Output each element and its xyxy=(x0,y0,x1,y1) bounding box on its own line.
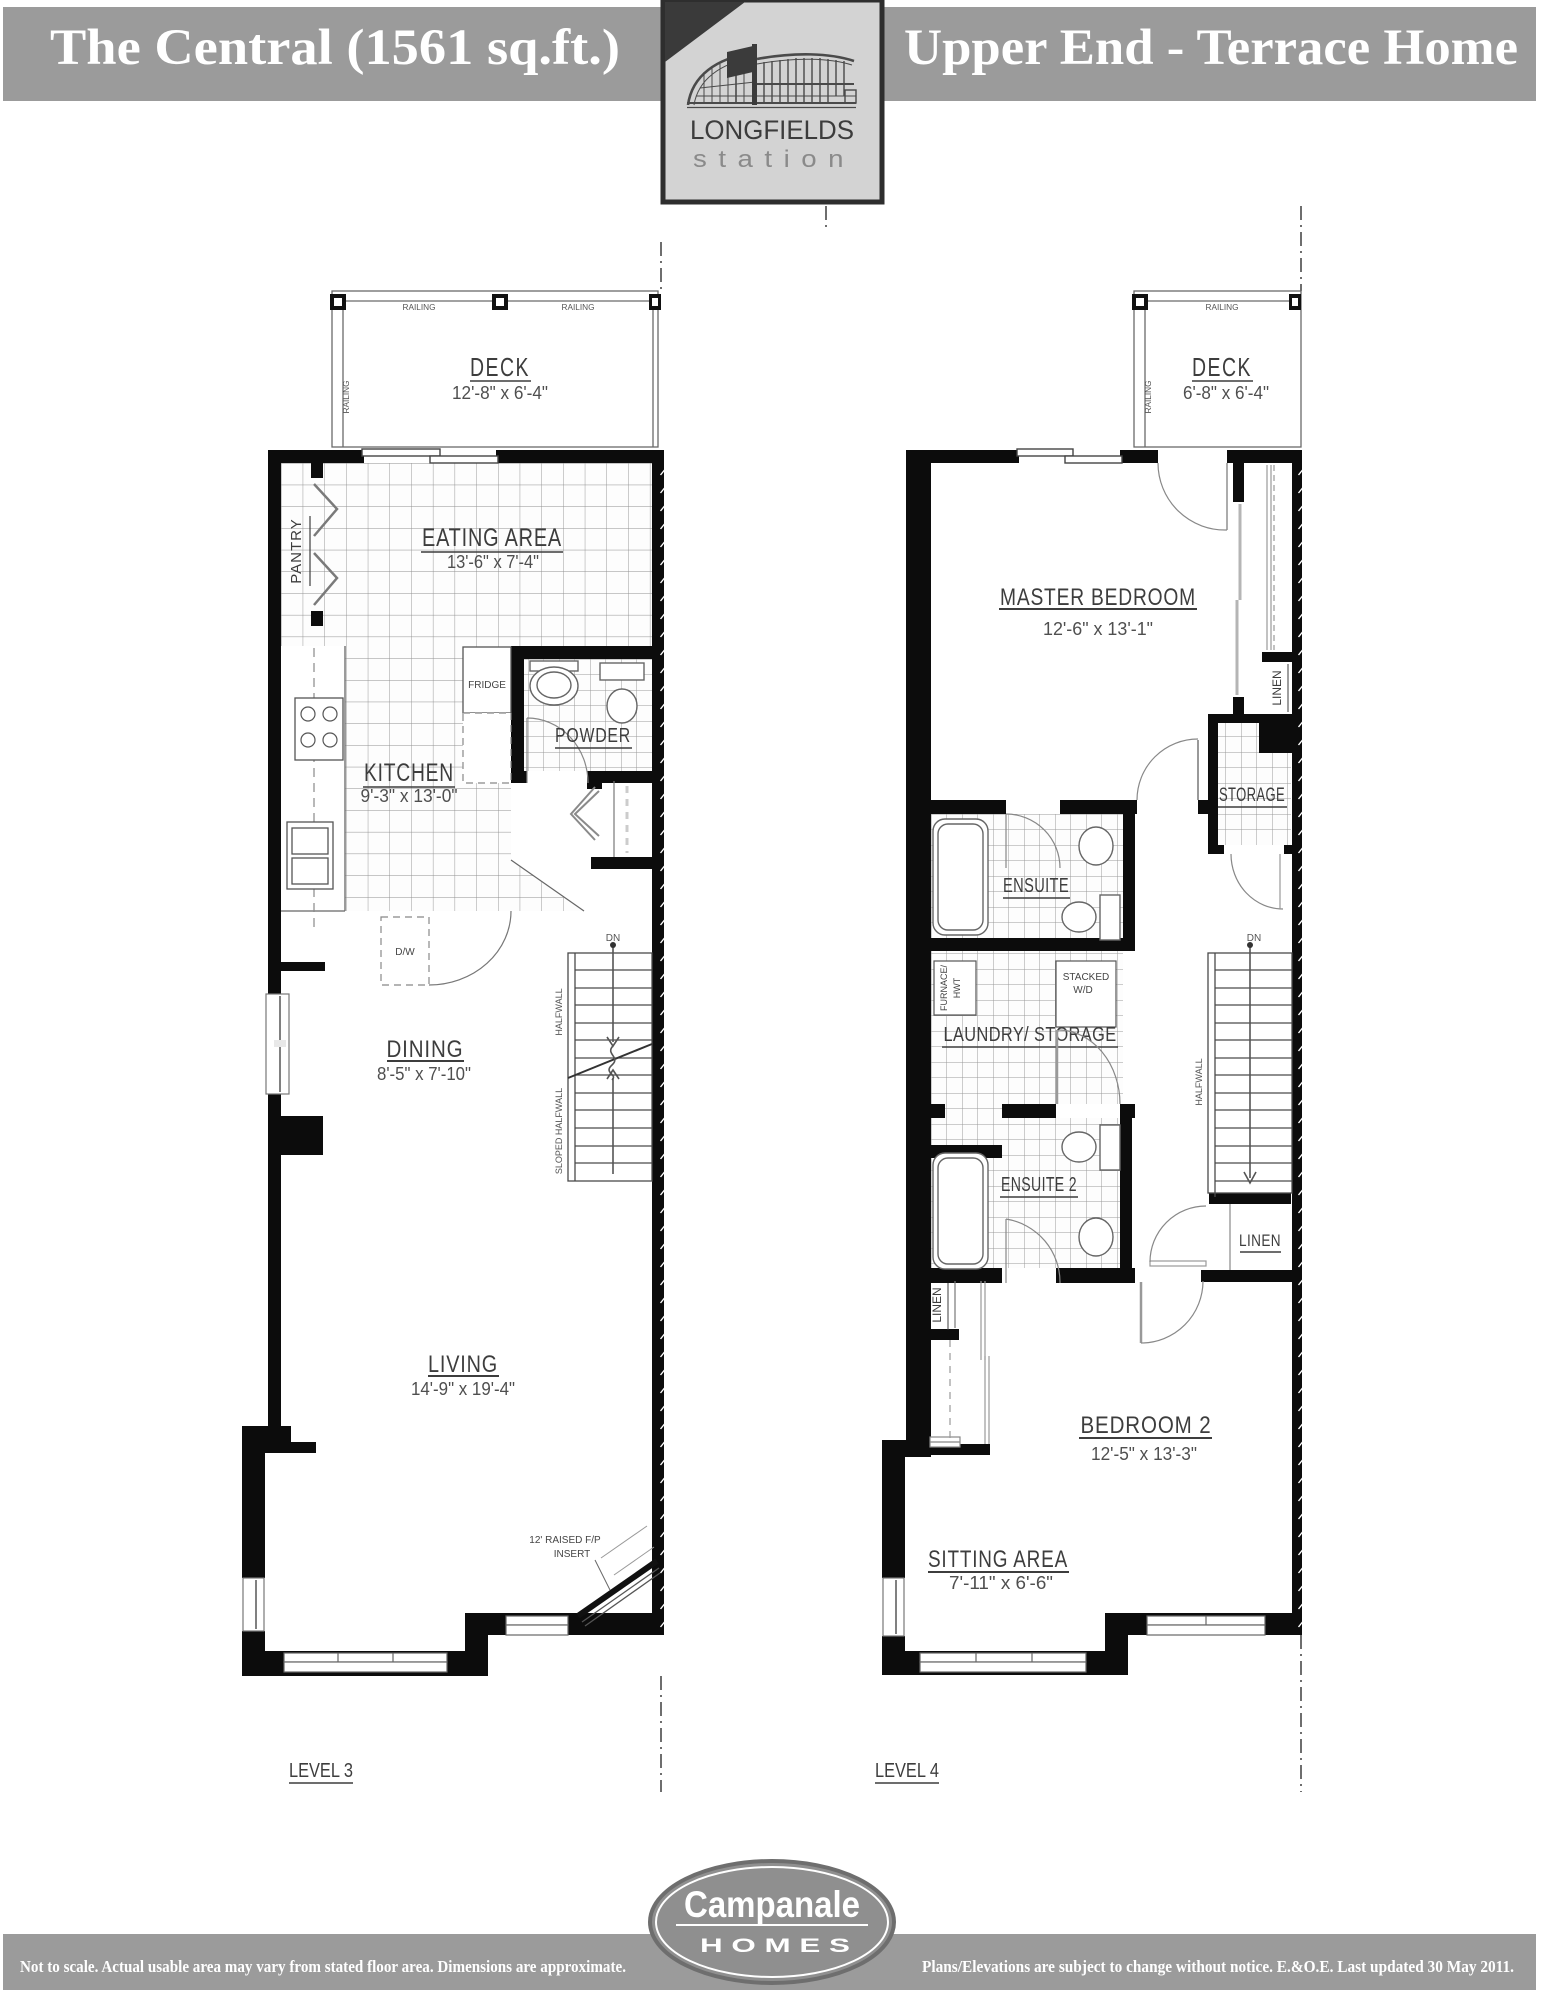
svg-text:LINEN: LINEN xyxy=(930,1287,944,1322)
svg-text:RAILING: RAILING xyxy=(403,302,436,312)
svg-text:SLOPED HALFWALL: SLOPED HALFWALL xyxy=(554,1088,564,1174)
svg-text:LEVEL 4: LEVEL 4 xyxy=(875,1760,939,1782)
svg-text:DN: DN xyxy=(606,933,620,944)
svg-text:LAUNDRY/ STORAGE: LAUNDRY/ STORAGE xyxy=(944,1024,1117,1046)
svg-text:Campanale: Campanale xyxy=(684,1884,860,1925)
svg-text:DECK: DECK xyxy=(1192,352,1252,382)
svg-text:HALFWALL: HALFWALL xyxy=(554,988,564,1035)
svg-text:SITTING AREA: SITTING AREA xyxy=(928,1546,1068,1573)
svg-text:DN: DN xyxy=(1247,933,1261,944)
svg-text:LINEN: LINEN xyxy=(1239,1231,1281,1250)
svg-text:RAILING: RAILING xyxy=(341,381,351,414)
svg-text:FURNACE/: FURNACE/ xyxy=(939,965,949,1012)
svg-text:ENSUITE: ENSUITE xyxy=(1003,875,1069,897)
svg-text:8'-5" x 7'-10": 8'-5" x 7'-10" xyxy=(377,1064,471,1084)
svg-text:STORAGE: STORAGE xyxy=(1219,785,1285,806)
svg-text:BEDROOM 2: BEDROOM 2 xyxy=(1081,1412,1212,1439)
svg-text:H O M E S: H O M E S xyxy=(700,1936,850,1957)
svg-text:POWDER: POWDER xyxy=(555,725,631,747)
svg-text:DECK: DECK xyxy=(470,352,530,382)
svg-text:LEVEL 3: LEVEL 3 xyxy=(289,1760,353,1782)
svg-text:PANTRY: PANTRY xyxy=(288,518,305,583)
svg-text:14'-9" x 19'-4": 14'-9" x 19'-4" xyxy=(411,1379,515,1399)
svg-text:LONGFIELDS: LONGFIELDS xyxy=(690,115,854,145)
svg-text:13'-6" x 7'-4": 13'-6" x 7'-4" xyxy=(447,552,539,572)
svg-text:12'-5" x 13'-3": 12'-5" x 13'-3" xyxy=(1091,1444,1197,1464)
svg-text:HALFWALL: HALFWALL xyxy=(1194,1058,1204,1105)
svg-text:EATING AREA: EATING AREA xyxy=(422,524,562,552)
svg-text:Not to scale. Actual usable ar: Not to scale. Actual usable area may var… xyxy=(20,1957,626,1976)
svg-text:LINEN: LINEN xyxy=(1270,670,1284,705)
svg-text:DINING: DINING xyxy=(387,1036,464,1063)
svg-text:The Central (1561 sq.ft.): The Central (1561 sq.ft.) xyxy=(50,20,620,76)
svg-text:HWT: HWT xyxy=(952,977,962,998)
svg-text:Plans/Elevations are subject t: Plans/Elevations are subject to change w… xyxy=(922,1957,1514,1976)
svg-text:6'-8" x 6'-4": 6'-8" x 6'-4" xyxy=(1183,383,1269,403)
svg-text:RAILING: RAILING xyxy=(1143,381,1153,414)
svg-text:ENSUITE 2: ENSUITE 2 xyxy=(1001,1174,1077,1196)
svg-text:FRIDGE: FRIDGE xyxy=(468,680,506,691)
svg-text:7'-11" x 6'-6": 7'-11" x 6'-6" xyxy=(949,1573,1053,1593)
svg-text:MASTER BEDROOM: MASTER BEDROOM xyxy=(1000,584,1196,611)
svg-text:12'-8" x 6'-4": 12'-8" x 6'-4" xyxy=(452,383,548,403)
svg-text:12' RAISED F/P: 12' RAISED F/P xyxy=(529,1535,601,1546)
svg-text:LIVING: LIVING xyxy=(428,1351,498,1378)
svg-text:STACKED: STACKED xyxy=(1063,972,1110,983)
svg-text:Upper End - Terrace Home: Upper End - Terrace Home xyxy=(904,20,1518,76)
svg-text:KITCHEN: KITCHEN xyxy=(364,759,454,787)
svg-text:RAILING: RAILING xyxy=(562,302,595,312)
svg-text:station: station xyxy=(693,146,855,173)
svg-text:W/D: W/D xyxy=(1073,985,1092,996)
svg-text:RAILING: RAILING xyxy=(1206,302,1239,312)
svg-text:12'-6" x 13'-1": 12'-6" x 13'-1" xyxy=(1043,619,1153,639)
svg-text:9'-3" x 13'-0": 9'-3" x 13'-0" xyxy=(361,786,458,806)
svg-text:INSERT: INSERT xyxy=(554,1549,591,1560)
svg-text:D/W: D/W xyxy=(395,947,415,958)
